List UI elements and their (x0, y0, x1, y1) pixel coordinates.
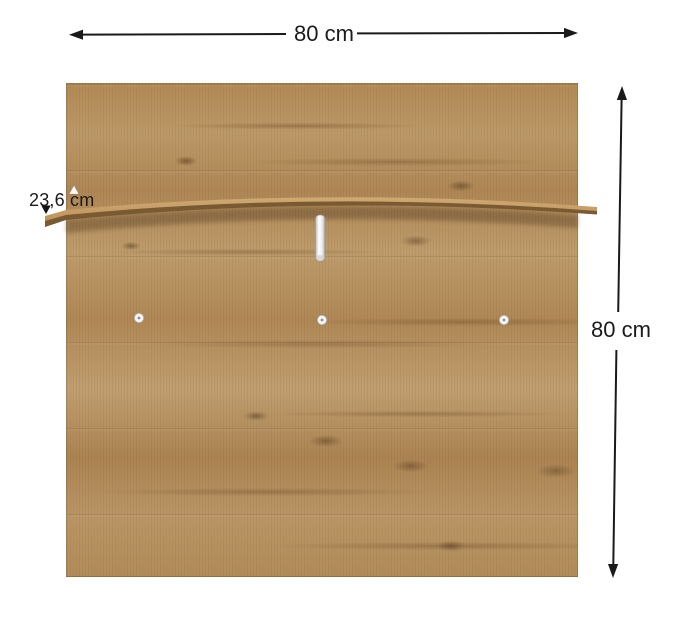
right-arrowhead-icon (564, 28, 578, 38)
coat-hook (316, 215, 326, 261)
height-dimension-label: 80 cm (591, 317, 651, 343)
width-dimension-label: 80 cm (280, 21, 368, 47)
diagram-overlay (0, 0, 674, 619)
down-arrowhead-icon (608, 564, 618, 578)
screw-cap (134, 313, 143, 322)
screw-cap (317, 315, 326, 324)
product-dimension-diagram: 80 cm 80 cm 23,6 cm (0, 0, 674, 619)
left-arrowhead-icon (69, 30, 83, 40)
screw-cap (499, 315, 508, 324)
shelf-depth-label: 23,6 cm (29, 190, 94, 211)
up-arrowhead-icon (617, 86, 627, 100)
